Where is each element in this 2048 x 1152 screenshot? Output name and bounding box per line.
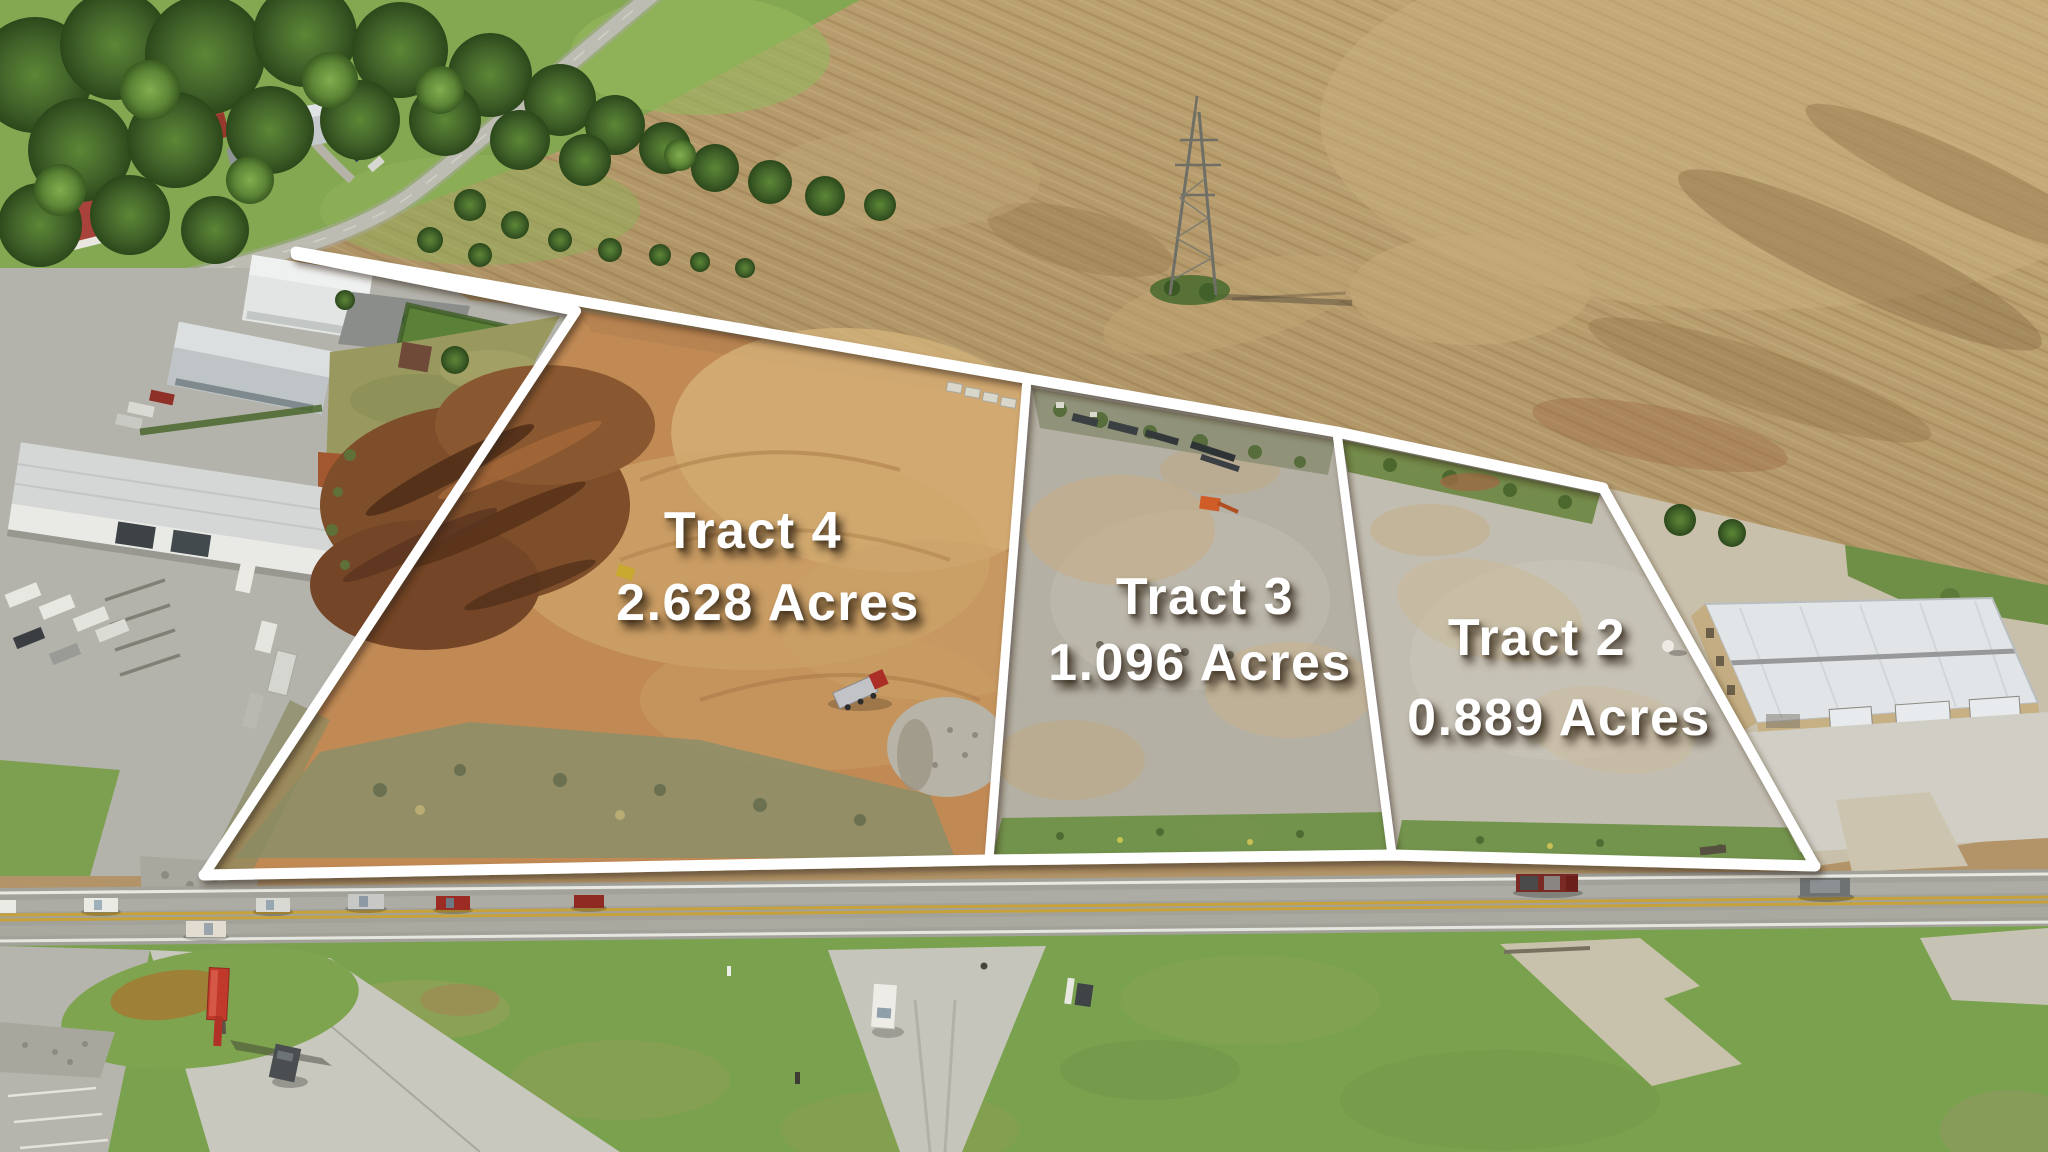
brown-shed bbox=[398, 342, 432, 373]
building-sign bbox=[1766, 714, 1800, 728]
gravel-pile bbox=[887, 697, 1007, 797]
tract-3-acreage: 1.096 Acres bbox=[1048, 637, 1352, 689]
tract-4-label: Tract 4 bbox=[664, 505, 842, 557]
grass-verge bbox=[992, 812, 1392, 856]
white-barrel bbox=[1662, 640, 1674, 652]
bottom-fields bbox=[0, 926, 2048, 1152]
tract-2-label: Tract 2 bbox=[1448, 612, 1626, 664]
gray-suv bbox=[1798, 878, 1854, 902]
flatbed-truck bbox=[1513, 874, 1583, 898]
tract-2-acreage: 0.889 Acres bbox=[1407, 692, 1711, 744]
aerial-photo-scene bbox=[0, 0, 2048, 1152]
aerial-photo: Tract 4 2.628 Acres Tract 3 1.096 Acres … bbox=[0, 0, 2048, 1152]
tract-3-label: Tract 3 bbox=[1116, 571, 1294, 623]
tract-4-acreage: 2.628 Acres bbox=[616, 577, 920, 629]
